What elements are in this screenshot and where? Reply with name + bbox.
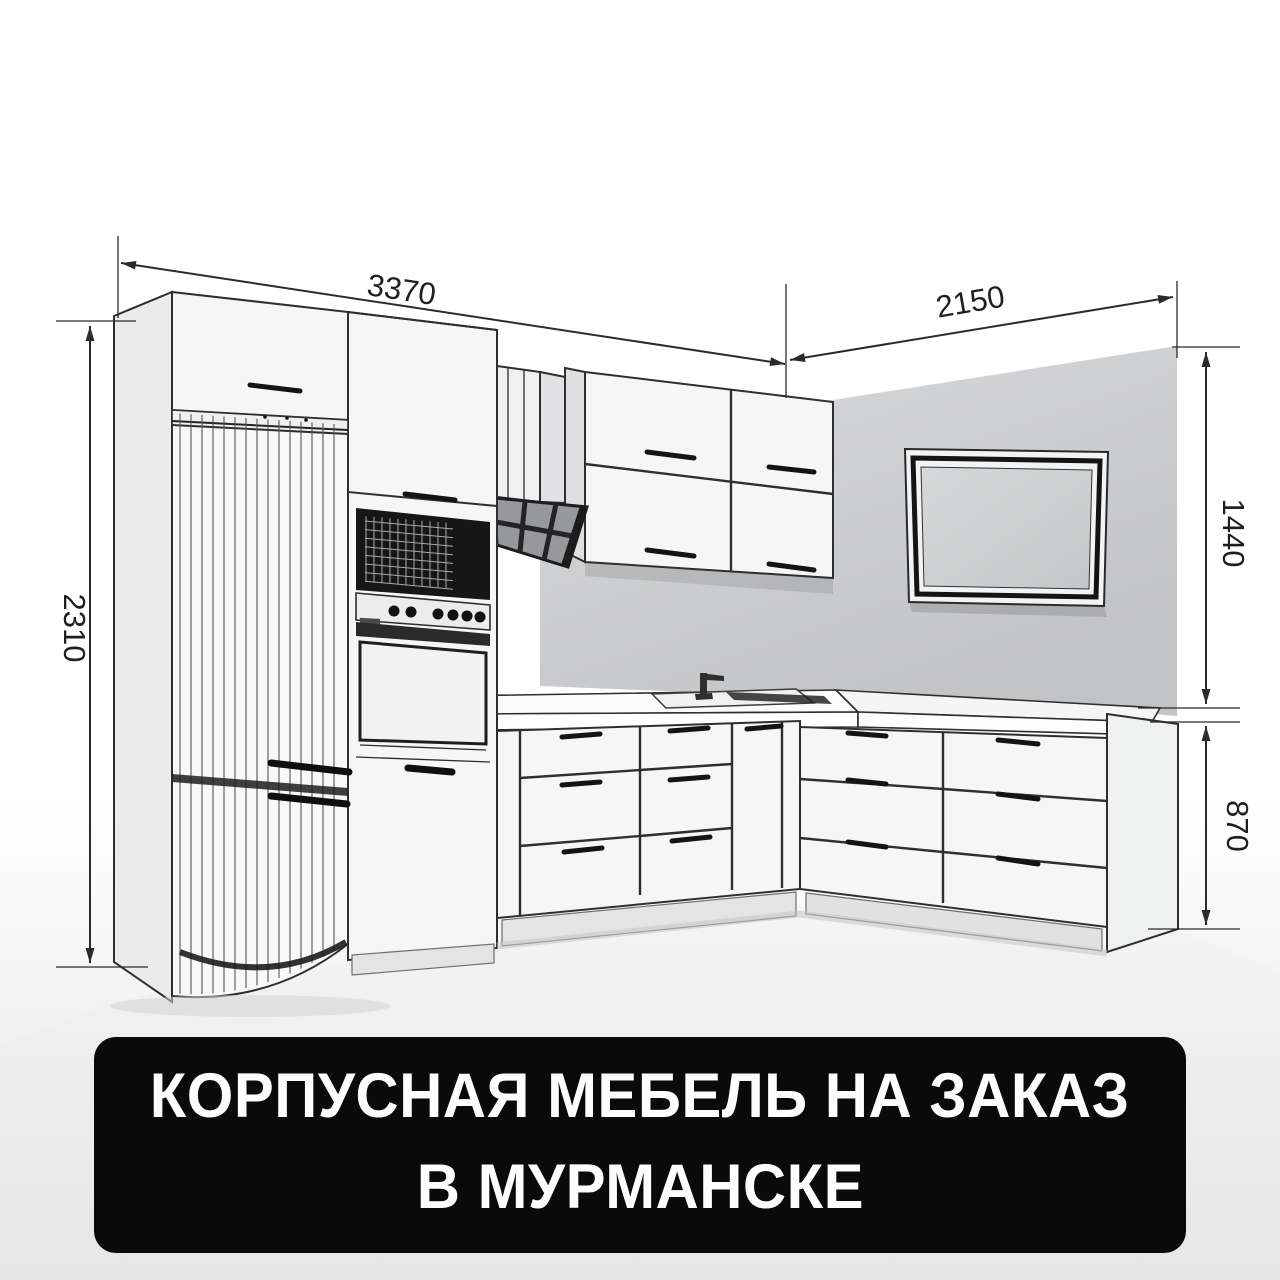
dim-label-870: 870	[1220, 800, 1255, 852]
fridge-tall-unit	[114, 292, 349, 1002]
hood-duct	[497, 366, 565, 503]
drawer-handle	[848, 733, 886, 736]
fridge-door	[172, 425, 348, 997]
floor-shadow	[110, 995, 390, 1017]
fridge-side-panel	[114, 292, 172, 1002]
door-handle	[747, 726, 781, 729]
base-drawer-units-front	[497, 721, 800, 946]
dimension-1440: 1440	[1202, 352, 1252, 704]
wall-cabinet-front	[585, 372, 833, 578]
drawer-handle	[670, 728, 708, 731]
oven-door	[360, 642, 486, 744]
dimension-870: 870	[1202, 726, 1256, 925]
drawer-handle	[562, 734, 600, 737]
fridge-top-cabinet	[172, 292, 348, 420]
end-panel	[1107, 714, 1178, 952]
ad-banner: КОРПУСНАЯ МЕБЕЛЬ НА ЗАКАЗ В МУРМАНСКЕ	[94, 1037, 1186, 1253]
wall-cabinets	[565, 368, 833, 594]
tv-panel	[905, 449, 1108, 617]
banner-line-1: КОРПУСНАЯ МЕБЕЛЬ НА ЗАКАЗ	[150, 1065, 1130, 1128]
dim-label-2150: 2150	[933, 279, 1007, 325]
dim-label-2310: 2310	[57, 594, 92, 663]
drawer-handle	[562, 782, 600, 785]
dimension-2310: 2310	[57, 326, 95, 963]
base-drawer-units-right	[800, 714, 1178, 952]
drawer-handle	[408, 768, 452, 772]
banner-line-2: В МУРМАНСКЕ	[416, 1156, 863, 1219]
dim-label-3370: 3370	[365, 267, 438, 312]
kitchen-ad-image: 3370 2150 2310 1440 870	[0, 0, 1280, 1280]
drawer-handle	[670, 777, 708, 780]
dimension-2150: 2150	[790, 279, 1173, 362]
tv-screen	[921, 467, 1092, 589]
oven-microwave-tower	[348, 312, 497, 975]
dim-label-1440: 1440	[1216, 499, 1251, 568]
